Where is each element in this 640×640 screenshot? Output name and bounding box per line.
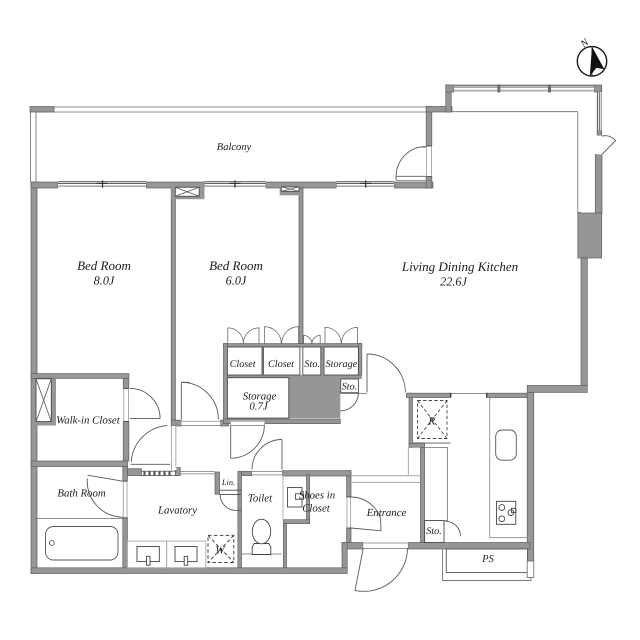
svg-text:Sto.: Sto. [426,526,442,537]
svg-text:Closet: Closet [302,503,331,515]
svg-text:Closet: Closet [230,359,257,370]
svg-text:Lin.: Lin. [221,478,235,487]
svg-text:R: R [427,416,435,428]
svg-text:Living Dining Kitchen: Living Dining Kitchen [401,259,518,274]
svg-text:Sto.: Sto. [304,359,320,370]
svg-text:Bath Room: Bath Room [57,488,105,500]
svg-text:Walk-in Closet: Walk-in Closet [56,415,120,427]
svg-text:Lavatory: Lavatory [157,505,197,517]
svg-text:Sto.: Sto. [342,382,358,393]
svg-text:6.0J: 6.0J [226,274,247,288]
svg-text:Storage: Storage [326,359,358,370]
svg-text:Toilet: Toilet [248,493,273,505]
svg-text:Shoes in: Shoes in [299,490,335,502]
svg-text:Entrance: Entrance [366,507,407,519]
svg-text:PS: PS [481,554,494,565]
svg-text:Balcony: Balcony [217,142,252,153]
svg-text:W: W [215,545,225,557]
svg-text:8.0J: 8.0J [94,274,115,288]
svg-text:Bed Room: Bed Room [209,258,263,273]
svg-text:22.6J: 22.6J [440,275,467,289]
svg-text:Closet: Closet [268,359,295,370]
svg-text:0.7J: 0.7J [249,401,268,413]
svg-text:Bed Room: Bed Room [77,258,131,273]
